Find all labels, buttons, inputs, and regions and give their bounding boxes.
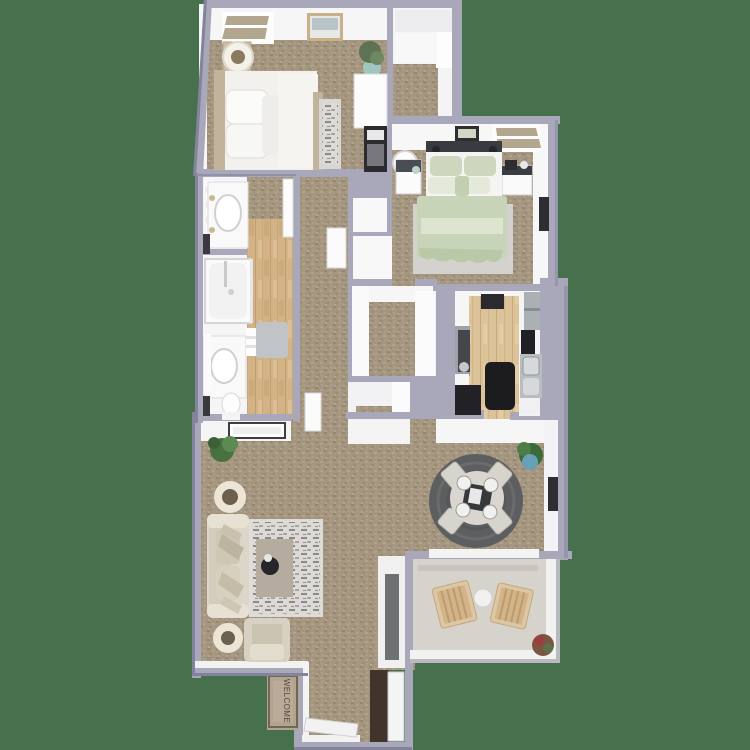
svg-text:WELCOME: WELCOME xyxy=(282,679,291,723)
